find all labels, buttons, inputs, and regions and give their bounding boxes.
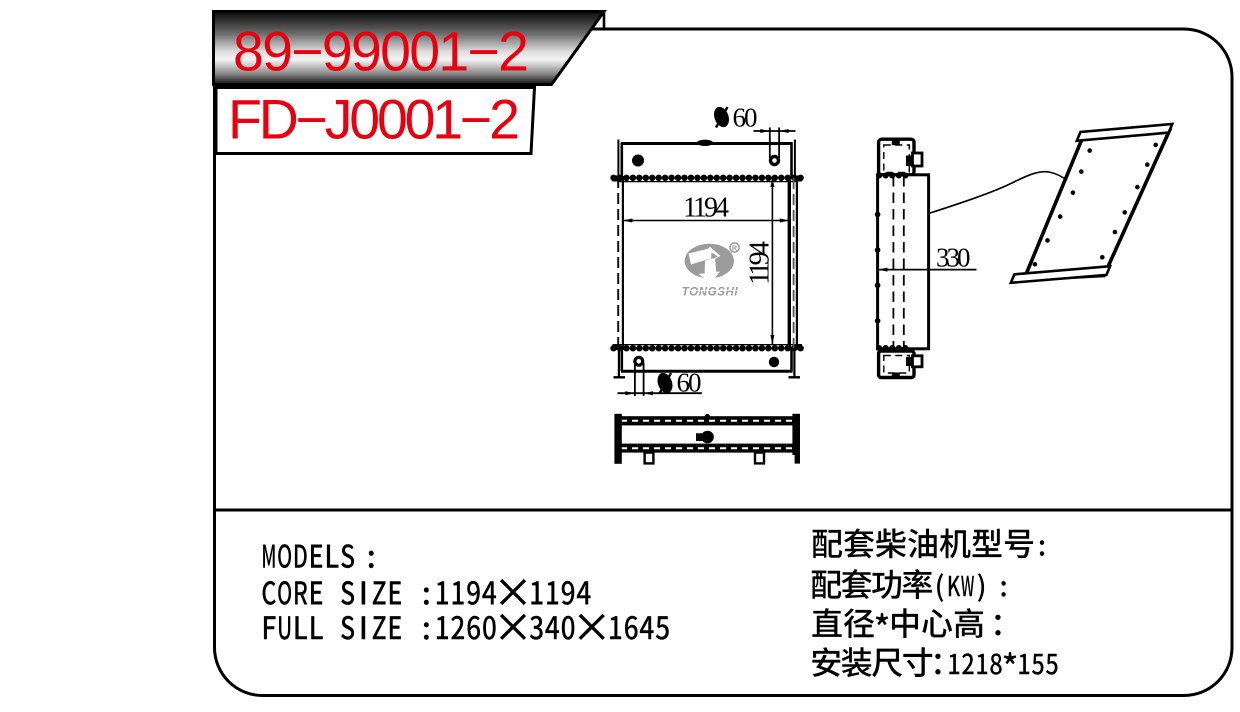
svg-text:TONGSHI: TONGSHI <box>682 287 739 299</box>
svg-text:60: 60 <box>733 103 758 133</box>
svg-text:89−99001−2: 89−99001−2 <box>233 21 529 83</box>
svg-text:330: 330 <box>936 243 971 273</box>
svg-text:60: 60 <box>677 368 702 398</box>
svg-text:1194: 1194 <box>683 193 729 224</box>
svg-text:1194: 1194 <box>745 241 776 285</box>
svg-text:R: R <box>732 244 738 253</box>
svg-text:FD−J0001−2: FD−J0001−2 <box>228 89 520 151</box>
